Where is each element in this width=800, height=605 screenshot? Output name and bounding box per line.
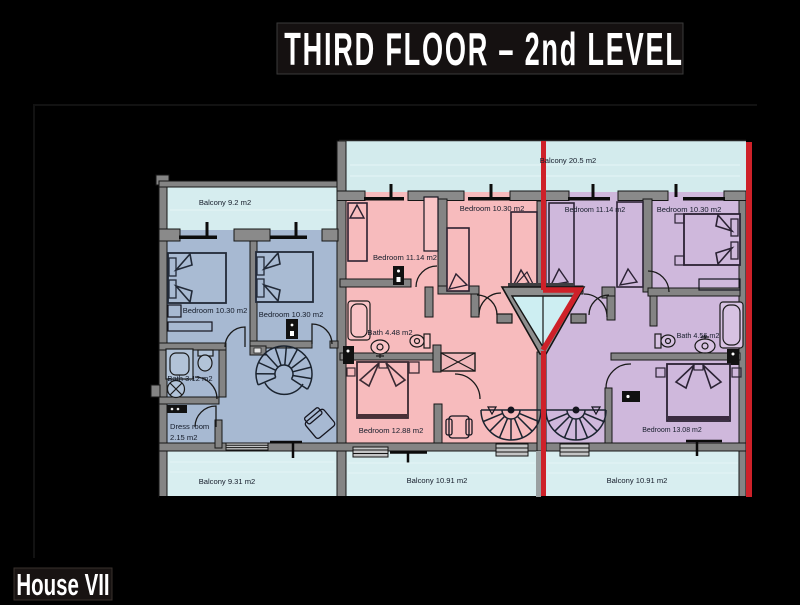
svg-text:Dress room: Dress room (170, 422, 209, 431)
svg-text:Balcony 9.2 m2: Balcony 9.2 m2 (199, 198, 251, 207)
svg-text:Bedroom 10.30 m2: Bedroom 10.30 m2 (183, 306, 248, 315)
svg-text:Bedroom 11.14 m2: Bedroom 11.14 m2 (373, 253, 437, 262)
svg-text:Balcony 10.91 m2: Balcony 10.91 m2 (607, 476, 668, 485)
svg-text:Balcony 20.5 m2: Balcony 20.5 m2 (540, 156, 597, 165)
svg-text:Bedroom 10.30 m2: Bedroom 10.30 m2 (460, 204, 525, 213)
svg-text:Bath 4.48 m2: Bath 4.48 m2 (367, 328, 412, 337)
svg-text:Bedroom 10.30 m2: Bedroom 10.30 m2 (657, 205, 722, 214)
svg-text:Bedroom 12.88 m2: Bedroom 12.88 m2 (359, 426, 424, 435)
svg-text:2.15 m2: 2.15 m2 (170, 433, 197, 442)
svg-text:Bedroom 13.08 m2: Bedroom 13.08 m2 (642, 427, 702, 434)
svg-text:Bedroom 10.30 m2: Bedroom 10.30 m2 (259, 310, 324, 319)
svg-text:Bedroom 11.14 m2: Bedroom 11.14 m2 (565, 205, 626, 214)
svg-text:Balcony 10.91 m2: Balcony 10.91 m2 (407, 476, 468, 485)
svg-text:Bath 4.56 m2: Bath 4.56 m2 (677, 331, 720, 340)
svg-text:House VII: House VII (16, 567, 109, 602)
svg-text:Balcony 9.31 m2: Balcony 9.31 m2 (199, 477, 256, 486)
svg-text:THIRD FLOOR – 2nd LEVEL: THIRD FLOOR – 2nd LEVEL (284, 25, 683, 76)
svg-text:Bath 3.12 m2: Bath 3.12 m2 (167, 374, 212, 383)
